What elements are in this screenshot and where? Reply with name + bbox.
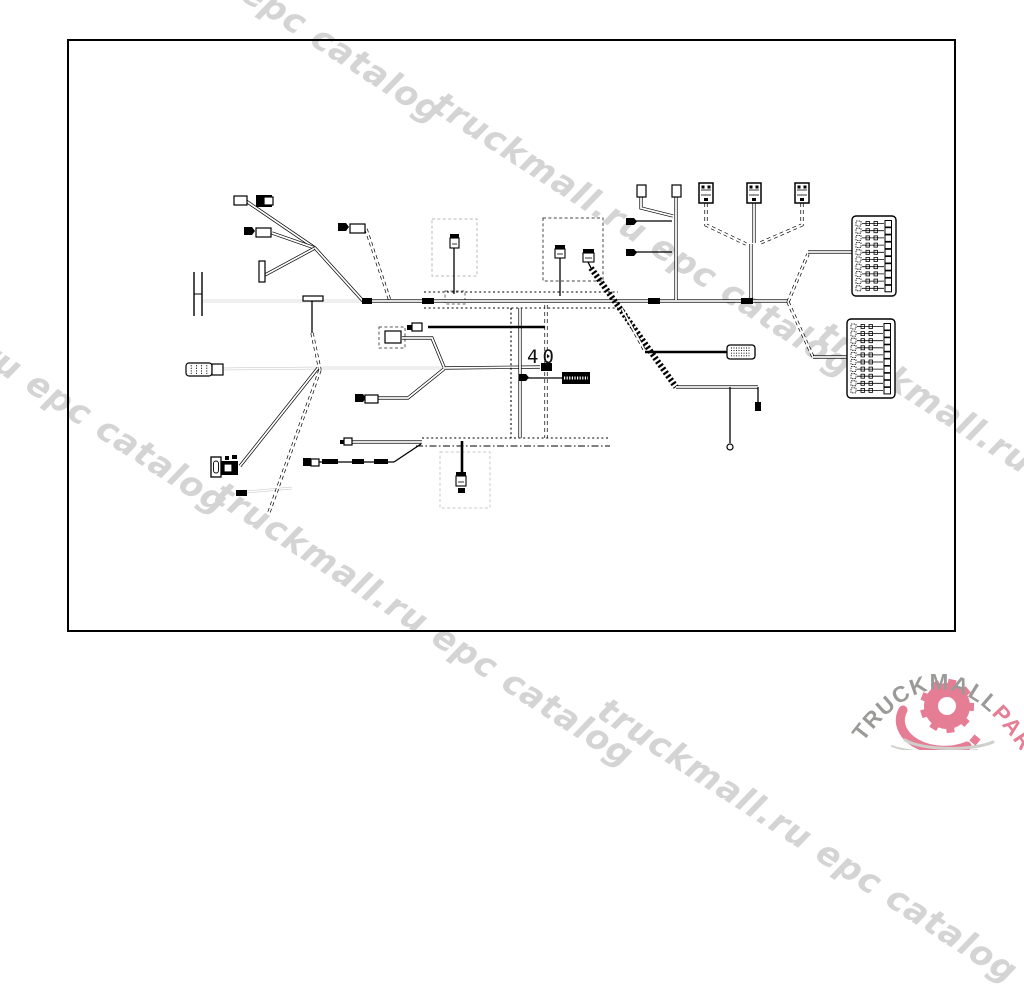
wire [706,203,746,244]
connector [648,298,660,304]
connector [672,185,681,197]
connector [727,444,733,450]
fuse-terminal [885,278,892,285]
wire [641,197,673,216]
connector [236,490,247,496]
connector [211,457,221,477]
connector [186,363,212,376]
connector [374,459,388,464]
connector [555,249,565,258]
fuse-terminal [884,359,891,366]
connector [303,458,311,466]
wire [706,203,746,244]
wire [402,338,444,367]
wire [315,248,363,301]
wire [312,333,320,370]
connector [344,438,352,445]
fuse-terminal [885,221,892,228]
wire [366,229,390,301]
fuse-terminal [885,242,892,249]
connector [350,224,365,233]
wire [240,368,318,466]
connector [303,296,323,301]
wiring-diagram: 40 TRUCKMALLPARTS [0,0,1024,750]
wire [265,248,315,275]
fuse-terminal [885,235,892,242]
connector [365,395,378,403]
wire [788,302,813,357]
connector [212,364,223,375]
fuse-terminal [884,331,891,338]
fuse-terminal [884,387,891,394]
fuse-terminal [884,324,891,331]
connector [756,186,759,189]
fuse-terminal [884,380,891,387]
connector [338,223,349,231]
fuse-terminal [884,366,891,373]
connector [750,186,753,189]
gear-icon-part [969,734,980,745]
wire [246,201,315,248]
connector [234,196,247,205]
connector [311,459,319,466]
connector [355,394,366,402]
connector [352,459,364,464]
connector [637,185,646,197]
connector [800,198,804,201]
wire [373,369,444,398]
gear-icon-part [938,697,956,715]
connector [244,227,255,235]
wire [788,254,808,302]
wire [373,369,444,398]
connector [224,464,232,472]
connector [340,440,344,444]
fuse-terminal [885,264,892,271]
connector [322,459,338,464]
connector [256,228,271,237]
wire [444,367,540,368]
connector [583,253,594,262]
fuse-terminal [885,257,892,264]
wire [394,444,421,462]
fuse-terminal [884,373,891,380]
wire [622,309,645,351]
connector [704,198,708,201]
fuse-terminal [884,345,891,352]
connector [456,476,466,486]
connector [362,298,372,304]
connector [752,198,756,201]
connector [555,245,565,249]
callout-label-40: 40 [527,346,558,368]
fuse-terminal [885,271,892,278]
connector [232,455,237,459]
connector [407,325,412,330]
connector [804,186,807,189]
wire [247,488,292,492]
connector [626,249,637,256]
fuse-terminal [884,338,891,345]
connector [708,186,711,189]
wire [588,262,591,268]
connector [702,186,705,189]
wire [268,370,320,515]
connector [412,323,422,331]
connector [264,197,273,205]
fuse-terminal [884,352,891,359]
connector [385,331,401,343]
fuse-terminal [885,228,892,235]
connector [519,374,529,381]
connector [583,249,594,253]
fuse-terminal [885,249,892,256]
wire [222,368,318,369]
connector [450,238,459,248]
page-frame-border [68,40,955,631]
connector [259,261,265,282]
wire [758,203,802,244]
connector [450,234,459,238]
connector [422,298,434,304]
connector [727,345,755,359]
connector [626,218,637,225]
wire [758,203,802,244]
connector [456,472,466,476]
connector [225,456,229,460]
connector [755,402,761,411]
connector [741,298,753,304]
connector [458,488,465,493]
connector [798,186,801,189]
fuse-terminal [885,285,892,292]
